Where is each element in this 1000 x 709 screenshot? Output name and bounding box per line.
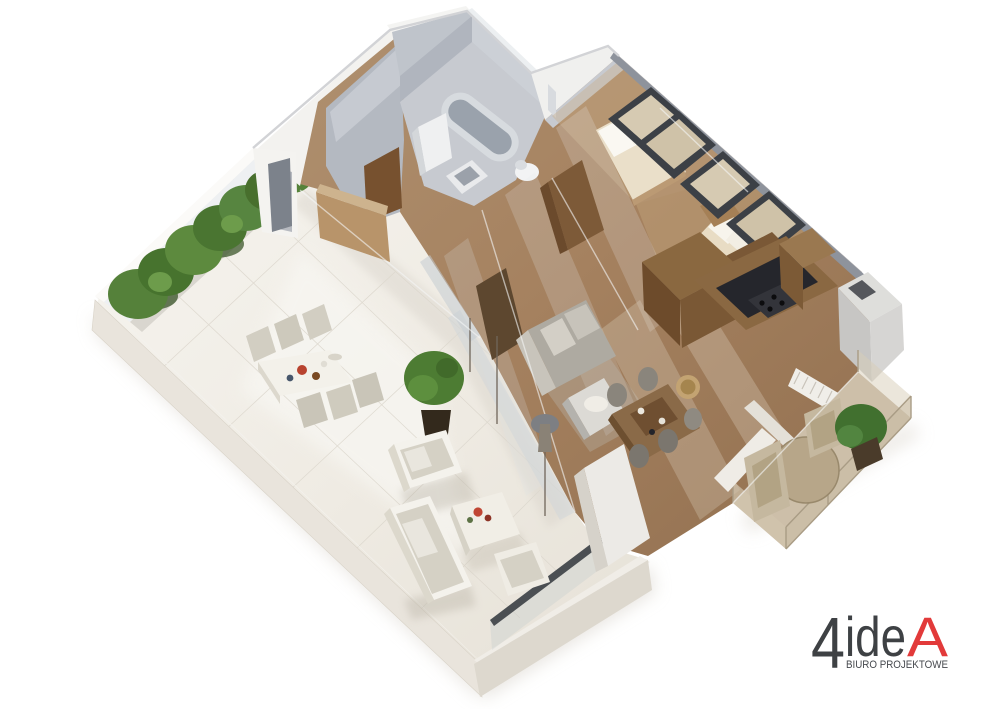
svg-text:4: 4 bbox=[811, 604, 845, 684]
svg-text:BIURO PROJEKTOWE: BIURO PROJEKTOWE bbox=[846, 659, 948, 671]
